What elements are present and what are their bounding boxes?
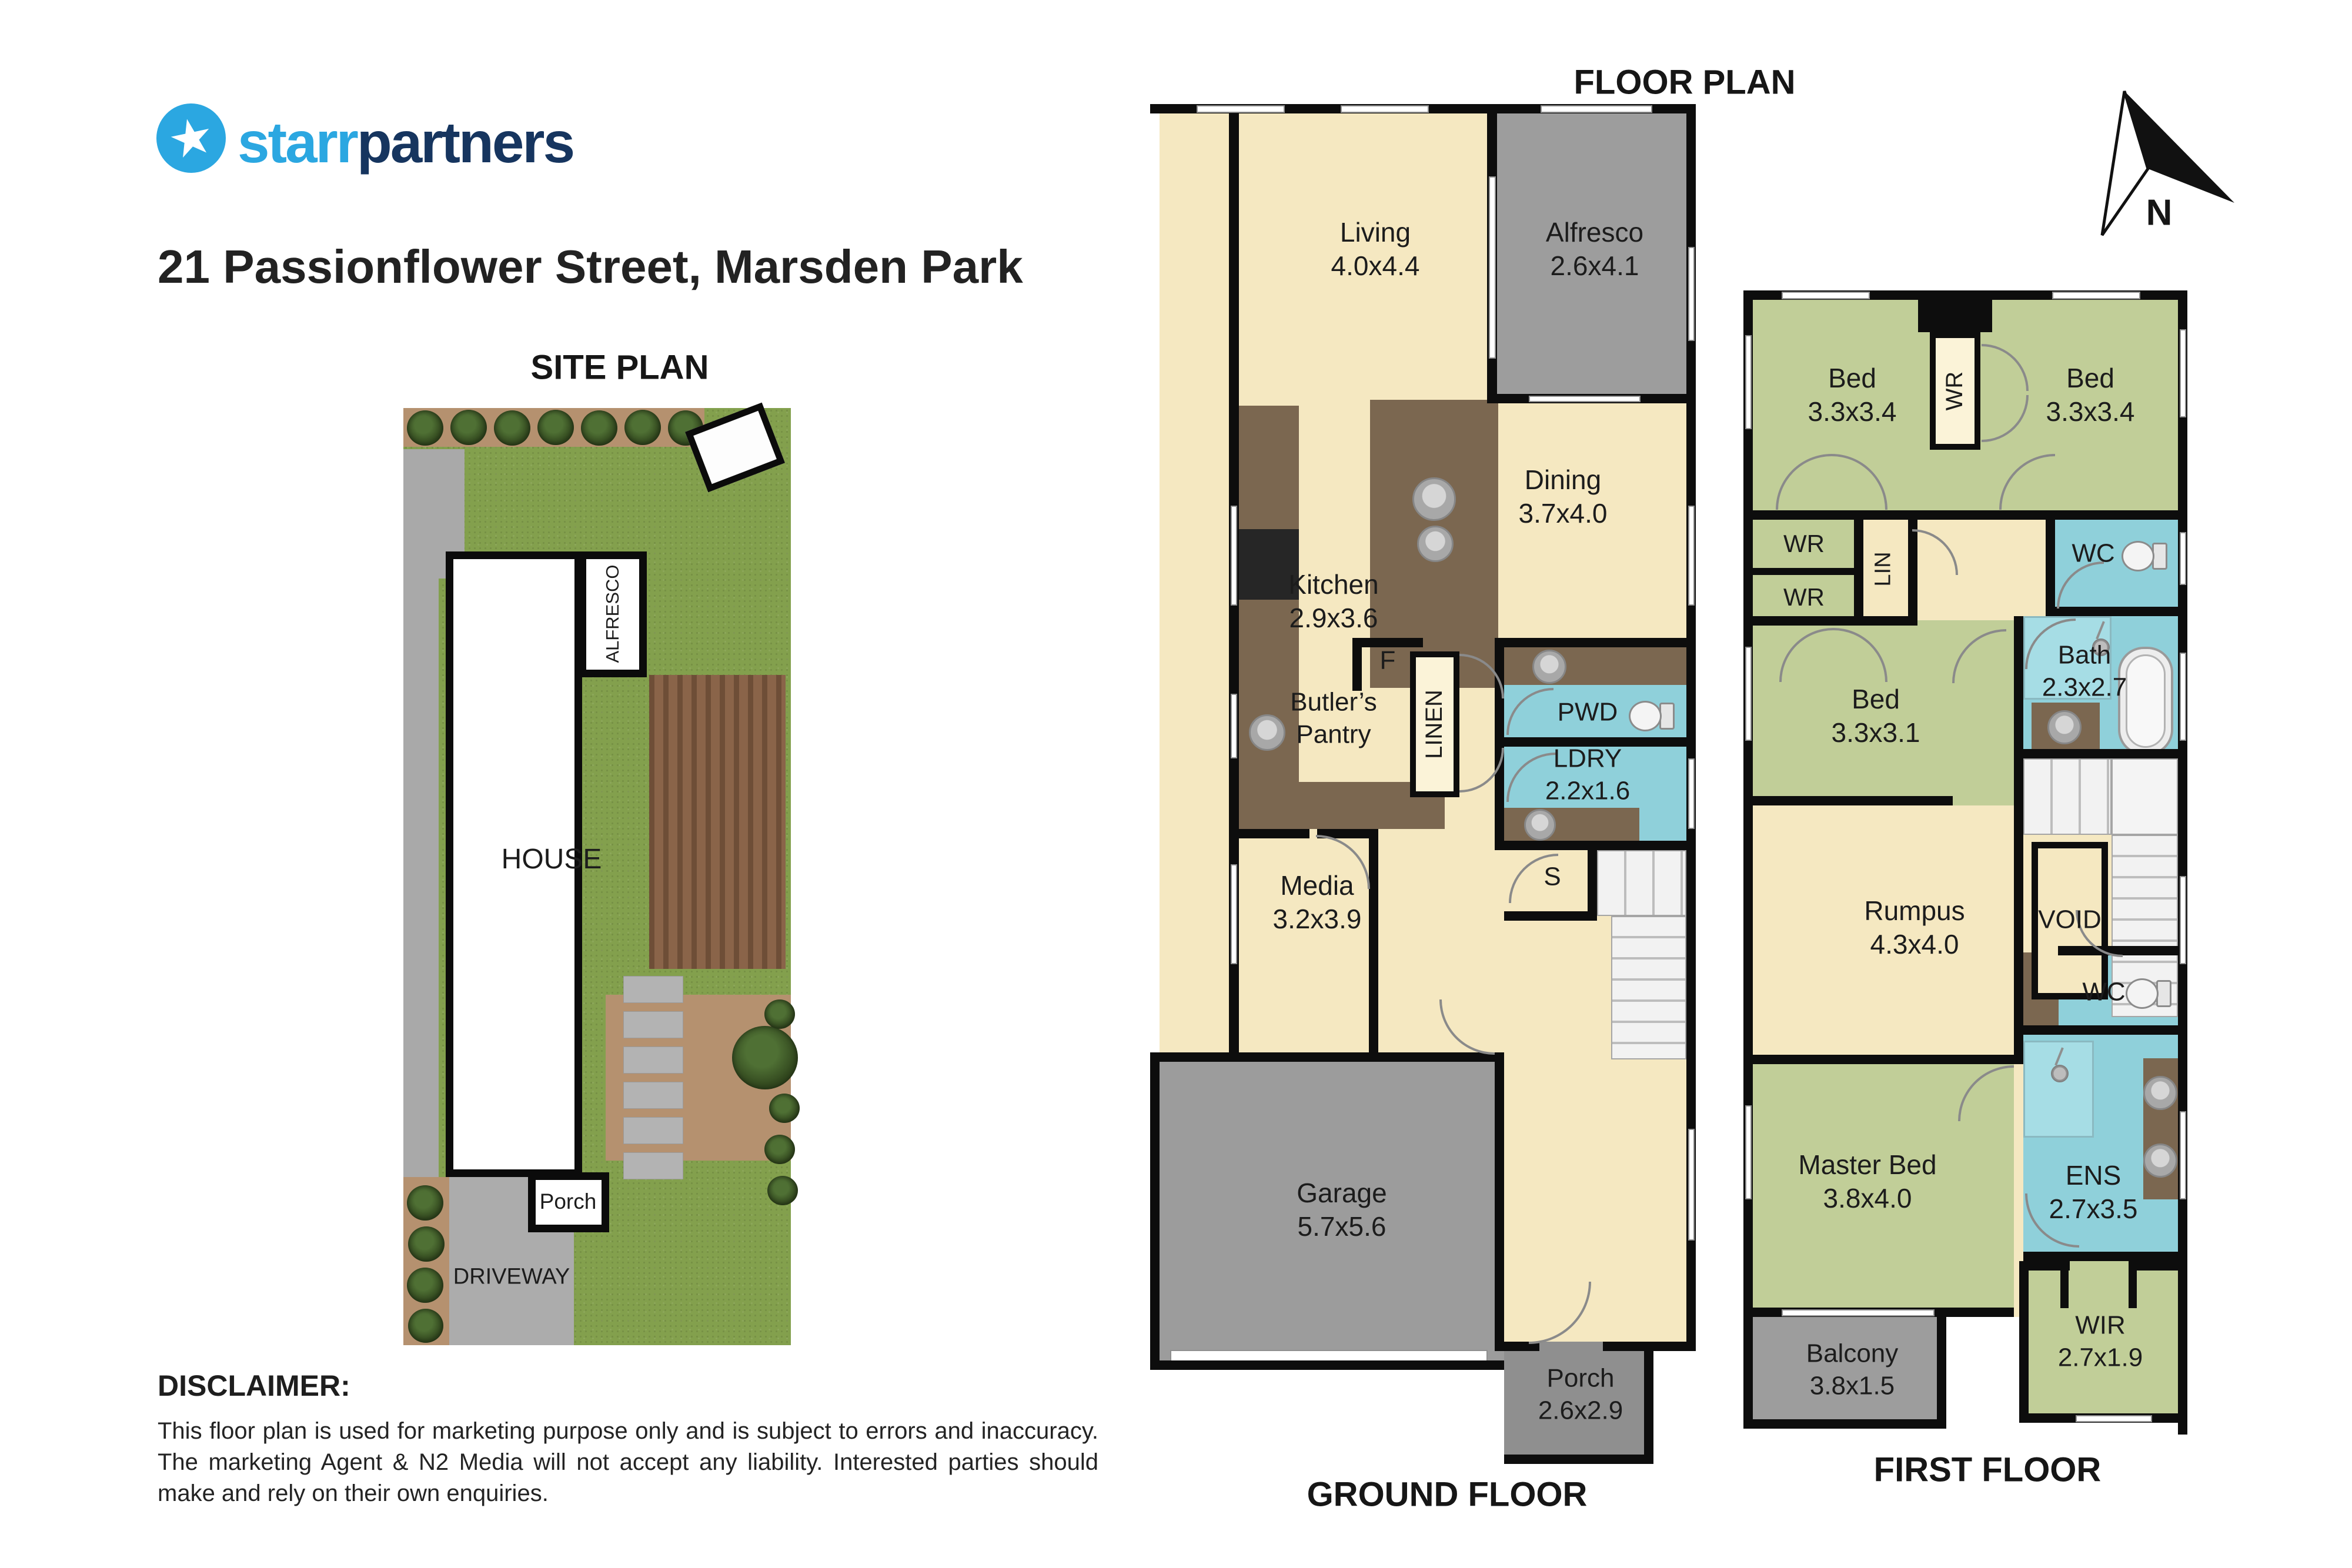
site-plan-title: SITE PLAN bbox=[531, 348, 709, 387]
wall bbox=[1369, 829, 1378, 1052]
shrub-icon bbox=[767, 1176, 798, 1205]
window bbox=[1782, 292, 1870, 299]
gf-kitchen-label: Kitchen2.9x3.6 bbox=[1288, 568, 1378, 635]
gf-media-label: Media3.2x3.9 bbox=[1273, 869, 1362, 936]
bush-icon bbox=[407, 410, 443, 446]
north-label: N bbox=[2146, 192, 2173, 234]
shrub-icon bbox=[769, 1094, 800, 1123]
gf-pwd-label: PWD bbox=[1558, 697, 1618, 729]
wall bbox=[1644, 1342, 1653, 1464]
wall bbox=[1753, 1055, 2014, 1064]
stepping-stone bbox=[623, 1152, 683, 1179]
ff-stair-landing bbox=[2112, 758, 2178, 835]
ff-caption: FIRST FLOOR bbox=[1874, 1450, 2102, 1490]
gf-stair-landing bbox=[1597, 850, 1686, 916]
bush-icon bbox=[408, 1226, 445, 1262]
bath-basin-icon bbox=[2047, 710, 2082, 744]
island-sink-icon bbox=[1417, 526, 1454, 562]
wall bbox=[1504, 911, 1597, 921]
gf-alfresco-label: Alfresco2.6x4.1 bbox=[1546, 216, 1643, 283]
toilet-icon bbox=[1629, 700, 1675, 729]
stepping-stone bbox=[623, 1117, 683, 1144]
disclaimer-body: This floor plan is used for marketing pu… bbox=[158, 1416, 1098, 1510]
wall bbox=[2023, 749, 2178, 758]
stepping-stone bbox=[623, 976, 683, 1003]
window bbox=[2180, 1111, 2186, 1199]
wall bbox=[1753, 796, 1953, 805]
wall bbox=[1753, 616, 1917, 626]
bush-icon bbox=[581, 410, 617, 446]
wall bbox=[1854, 520, 1863, 620]
ens-basin-icon bbox=[2143, 1076, 2177, 1110]
site-driveway-label: DRIVEWAY bbox=[453, 1263, 570, 1290]
wall bbox=[1150, 1052, 1160, 1370]
wall bbox=[2046, 520, 2055, 616]
north-arrow-icon bbox=[2084, 68, 2261, 250]
bush-icon bbox=[407, 1185, 443, 1221]
ens-basin-icon bbox=[2143, 1144, 2177, 1178]
disclaimer-heading: DISCLAIMER: bbox=[158, 1369, 350, 1403]
gf-dining-label: Dining3.7x4.0 bbox=[1519, 463, 1608, 530]
window bbox=[1341, 105, 1429, 113]
ff-wr-mid-label: WR bbox=[1940, 372, 1970, 411]
ff-bath-label: Bath2.3x2.7 bbox=[2042, 639, 2127, 703]
wall bbox=[2131, 1261, 2178, 1271]
stepping-stone bbox=[623, 1047, 683, 1074]
bush-icon bbox=[624, 410, 661, 445]
wall bbox=[2129, 1261, 2137, 1308]
window bbox=[1745, 1105, 1752, 1199]
wall bbox=[2019, 1261, 2029, 1423]
window bbox=[1541, 105, 1652, 113]
window bbox=[1745, 335, 1752, 429]
window bbox=[1231, 506, 1237, 606]
ff-lin-label: LIN bbox=[1869, 551, 1897, 586]
ff-wr-b-label: WR bbox=[1783, 582, 1825, 613]
ff-bed3-label: Bed3.3x3.1 bbox=[1832, 683, 1920, 750]
window bbox=[2180, 532, 2186, 585]
wall bbox=[1588, 850, 1597, 921]
shower-icon bbox=[2040, 1049, 2076, 1085]
gf-pwd-vanity bbox=[1504, 647, 1686, 685]
ff-bed1-label: Bed3.3x3.4 bbox=[1808, 362, 1897, 429]
wall bbox=[1495, 638, 1696, 647]
window bbox=[1688, 758, 1695, 829]
logo-wordmark: starrpartners bbox=[238, 109, 573, 176]
logo-text-starr: starr bbox=[238, 110, 357, 175]
ff-wc-lower-label: WC bbox=[2082, 977, 2125, 1009]
floorplan-page: ★ starrpartners 21 Passionflower Street,… bbox=[0, 0, 2352, 1568]
floor-plan-title: FLOOR PLAN bbox=[1574, 63, 1796, 102]
window bbox=[2076, 1415, 2152, 1422]
wall bbox=[1918, 300, 1992, 332]
wall bbox=[1495, 841, 1696, 850]
site-house-label: HOUSE bbox=[502, 842, 602, 877]
palm-icon bbox=[732, 1026, 798, 1089]
wall bbox=[2060, 1261, 2069, 1308]
sliding-door bbox=[1489, 176, 1496, 359]
gf-butlers-label: Butler’sPantry bbox=[1290, 686, 1377, 750]
site-porch-label: Porch bbox=[540, 1188, 597, 1215]
bush-icon bbox=[450, 410, 487, 445]
wall bbox=[2178, 290, 2187, 1435]
window bbox=[1688, 247, 1695, 341]
logo-text-partners: partners bbox=[357, 110, 573, 175]
window bbox=[1231, 864, 1237, 964]
site-path-strip bbox=[403, 579, 439, 1188]
bush-icon bbox=[407, 1268, 443, 1303]
wall bbox=[1743, 1419, 1946, 1429]
wall bbox=[1150, 1052, 1504, 1062]
wall bbox=[1753, 510, 2178, 520]
window bbox=[1688, 506, 1695, 606]
gf-fridge-label: F bbox=[1380, 645, 1396, 677]
wall bbox=[1743, 1317, 1753, 1429]
gf-living-label: Living4.0x4.4 bbox=[1331, 216, 1420, 283]
sliding-door bbox=[1782, 1309, 1935, 1316]
wall bbox=[2023, 1025, 2178, 1035]
pwd-basin-icon bbox=[1532, 650, 1566, 684]
toilet-icon bbox=[2122, 540, 2167, 569]
window bbox=[2180, 653, 2186, 741]
island-sink-icon bbox=[1412, 477, 1456, 521]
ff-rumpus-label: Rumpus4.3x4.0 bbox=[1864, 894, 1965, 961]
shrub-icon bbox=[764, 999, 795, 1029]
wall bbox=[1150, 1360, 1504, 1370]
site-alfresco-label: ALFRESCO bbox=[602, 564, 624, 663]
page-title: 21 Passionflower Street, Marsden Park bbox=[158, 240, 1023, 294]
gf-store-label: S bbox=[1543, 861, 1561, 894]
gf-ldry-label: LDRY2.2x1.6 bbox=[1545, 743, 1630, 807]
ff-master-label: Master Bed3.8x4.0 bbox=[1798, 1148, 1936, 1215]
gf-caption: GROUND FLOOR bbox=[1307, 1475, 1588, 1514]
ff-bed2-label: Bed3.3x3.4 bbox=[2046, 362, 2135, 429]
ff-wc-upper-label: WC bbox=[2072, 538, 2114, 570]
ff-wir-label: WIR2.7x1.9 bbox=[2058, 1309, 2143, 1373]
wall bbox=[1495, 1052, 1504, 1351]
logo-star-glyph: ★ bbox=[163, 105, 219, 172]
site-deck bbox=[649, 675, 786, 969]
ff-ens-label: ENS2.7x3.5 bbox=[2049, 1159, 2138, 1226]
window bbox=[2052, 292, 2140, 299]
window bbox=[2180, 876, 2186, 964]
wall bbox=[2023, 1252, 2178, 1261]
bush-icon bbox=[494, 410, 530, 446]
window bbox=[2180, 329, 2186, 417]
window bbox=[1688, 1129, 1695, 1241]
window bbox=[1231, 694, 1237, 758]
wall bbox=[1937, 1317, 1946, 1429]
butler-sink-icon bbox=[1249, 714, 1285, 751]
window bbox=[1197, 105, 1285, 113]
toilet-icon bbox=[2126, 977, 2171, 1007]
stepping-stone bbox=[623, 1011, 683, 1038]
gf-porch-label: Porch2.6x2.9 bbox=[1538, 1362, 1623, 1426]
bush-icon bbox=[537, 410, 574, 445]
window bbox=[1529, 396, 1641, 402]
ff-wr-a-label: WR bbox=[1783, 529, 1825, 559]
gf-stair-run bbox=[1611, 916, 1686, 1059]
gf-linen-label: LINEN bbox=[1420, 690, 1449, 759]
ff-void-label: VOID bbox=[2038, 904, 2102, 937]
window bbox=[1745, 647, 1752, 741]
bush-icon bbox=[408, 1309, 443, 1343]
shrub-icon bbox=[764, 1135, 795, 1164]
ff-stair-top bbox=[2023, 758, 2112, 835]
ff-balcony-label: Balcony3.8x1.5 bbox=[1806, 1338, 1899, 1402]
gf-garage-label: Garage5.7x5.6 bbox=[1297, 1176, 1387, 1243]
wall bbox=[1753, 568, 1854, 575]
wall bbox=[2014, 616, 2023, 1064]
wall bbox=[1239, 829, 1309, 838]
wall bbox=[1504, 1455, 1653, 1464]
stepping-stone bbox=[623, 1082, 683, 1109]
ldry-sink-icon bbox=[1524, 809, 1556, 841]
starr-partners-logo-icon: ★ bbox=[150, 97, 232, 179]
